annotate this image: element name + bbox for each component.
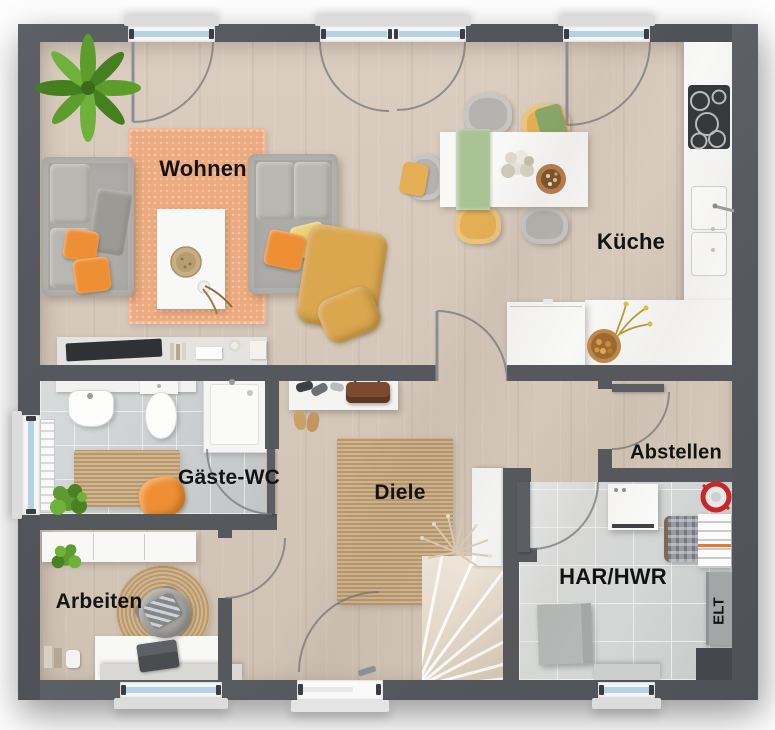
window-cap (564, 29, 569, 39)
window-sill (124, 16, 219, 26)
wall-wc-south (40, 514, 277, 530)
utility-appliance (537, 603, 593, 665)
bag-icon (346, 382, 390, 403)
wall-storage-south (598, 468, 732, 482)
kitchen-cabinet (507, 302, 585, 368)
window-cap (209, 29, 214, 39)
floor-plan: Wohnen Küche Gäste-WC Diele Abstellen Ar… (0, 0, 775, 730)
wall-office-east (218, 598, 232, 680)
sideboard-seam (144, 534, 145, 560)
window-cap (599, 685, 604, 695)
window-sill (558, 16, 655, 26)
wall-storage-west (598, 449, 612, 468)
window-glass (132, 31, 211, 37)
room-label-har-hwr: HAR/HWR (559, 564, 667, 590)
window-cap (394, 29, 398, 39)
dining-chair (521, 206, 568, 244)
drying-rack-bar (698, 544, 731, 547)
window-cap (129, 29, 134, 39)
book-icon (176, 344, 180, 360)
window-glass (567, 31, 646, 37)
window-sill (592, 698, 661, 709)
table-runner (456, 129, 490, 210)
room-label-kueche: Küche (597, 229, 665, 255)
window-sill (315, 16, 471, 26)
kitchen-counter-bottom (585, 300, 732, 370)
tray-icon (196, 347, 222, 359)
wall-living-south (40, 365, 437, 381)
book-icon (54, 648, 62, 668)
door-leaf-har (517, 482, 530, 552)
cabinet-knob (543, 299, 553, 304)
door-leaf-storage (612, 384, 664, 392)
wall-storage-west (598, 381, 612, 389)
candle-icon (228, 339, 241, 352)
room-label-wohnen: Wohnen (159, 156, 247, 182)
wc-sink-icon (68, 390, 114, 427)
window-cap (644, 29, 649, 39)
window-glass (28, 419, 34, 511)
window-cap (321, 29, 326, 39)
room-label-diele: Diele (374, 481, 425, 505)
sofa-cushion (256, 162, 294, 220)
window-cap (26, 416, 36, 421)
window-glass (399, 31, 462, 37)
wall-wc-east (265, 381, 279, 449)
exterior-wall-west (18, 24, 40, 700)
radiator-icon (40, 419, 55, 513)
dining-chair-mustard (455, 204, 501, 244)
door-cap (376, 684, 381, 695)
book-icon (170, 343, 174, 360)
window-sill (12, 411, 22, 519)
entrance-step (291, 700, 389, 712)
window-cap (121, 685, 126, 695)
wall-office-east (218, 530, 232, 538)
room-label-gaeste-wc: Gäste-WC (178, 466, 280, 490)
window-cap (649, 685, 654, 695)
mustard-seat-wrap (398, 161, 429, 197)
washing-machine-door-slit (612, 524, 654, 528)
sideboard-seam (93, 534, 94, 560)
sink-basin-icon (691, 232, 727, 276)
window-glass (125, 687, 217, 693)
orange-pillow (72, 256, 112, 294)
window-sill (114, 698, 228, 709)
drying-rack-icon (698, 514, 731, 568)
cooktop-icon (688, 85, 730, 149)
staircase (422, 556, 503, 680)
exterior-wall-east (732, 24, 758, 700)
laptop-icon (136, 639, 180, 672)
shower-drain (247, 390, 253, 396)
wall-kitchen-south (507, 365, 732, 381)
toilet-icon (145, 392, 177, 439)
window-cap (388, 29, 392, 39)
sink-basin-icon (691, 186, 727, 230)
stair-railing (472, 468, 503, 566)
orange-pillow (263, 228, 308, 271)
book-icon (182, 343, 186, 360)
cabinet-seam (510, 306, 582, 307)
room-label-abstellen: Abstellen (630, 442, 722, 465)
chimney-duct (696, 648, 732, 680)
sofa-cushion (294, 162, 330, 220)
entrance-door-panel (303, 687, 353, 692)
room-label-arbeiten: Arbeiten (56, 590, 143, 614)
window-glass (603, 687, 650, 693)
office-sideboard (42, 532, 196, 562)
window-shelf (594, 664, 660, 680)
window-glass (324, 31, 387, 37)
window-cap (26, 509, 36, 514)
book-icon (44, 646, 52, 668)
room-label-elt: ELT (711, 597, 728, 625)
window-cap (460, 29, 465, 39)
basket-icon (66, 650, 80, 668)
window-cap (216, 685, 221, 695)
door-cap (298, 684, 303, 695)
storage-box-icon (250, 341, 266, 359)
coffee-table (157, 209, 225, 309)
sofa-cushion (50, 164, 90, 224)
